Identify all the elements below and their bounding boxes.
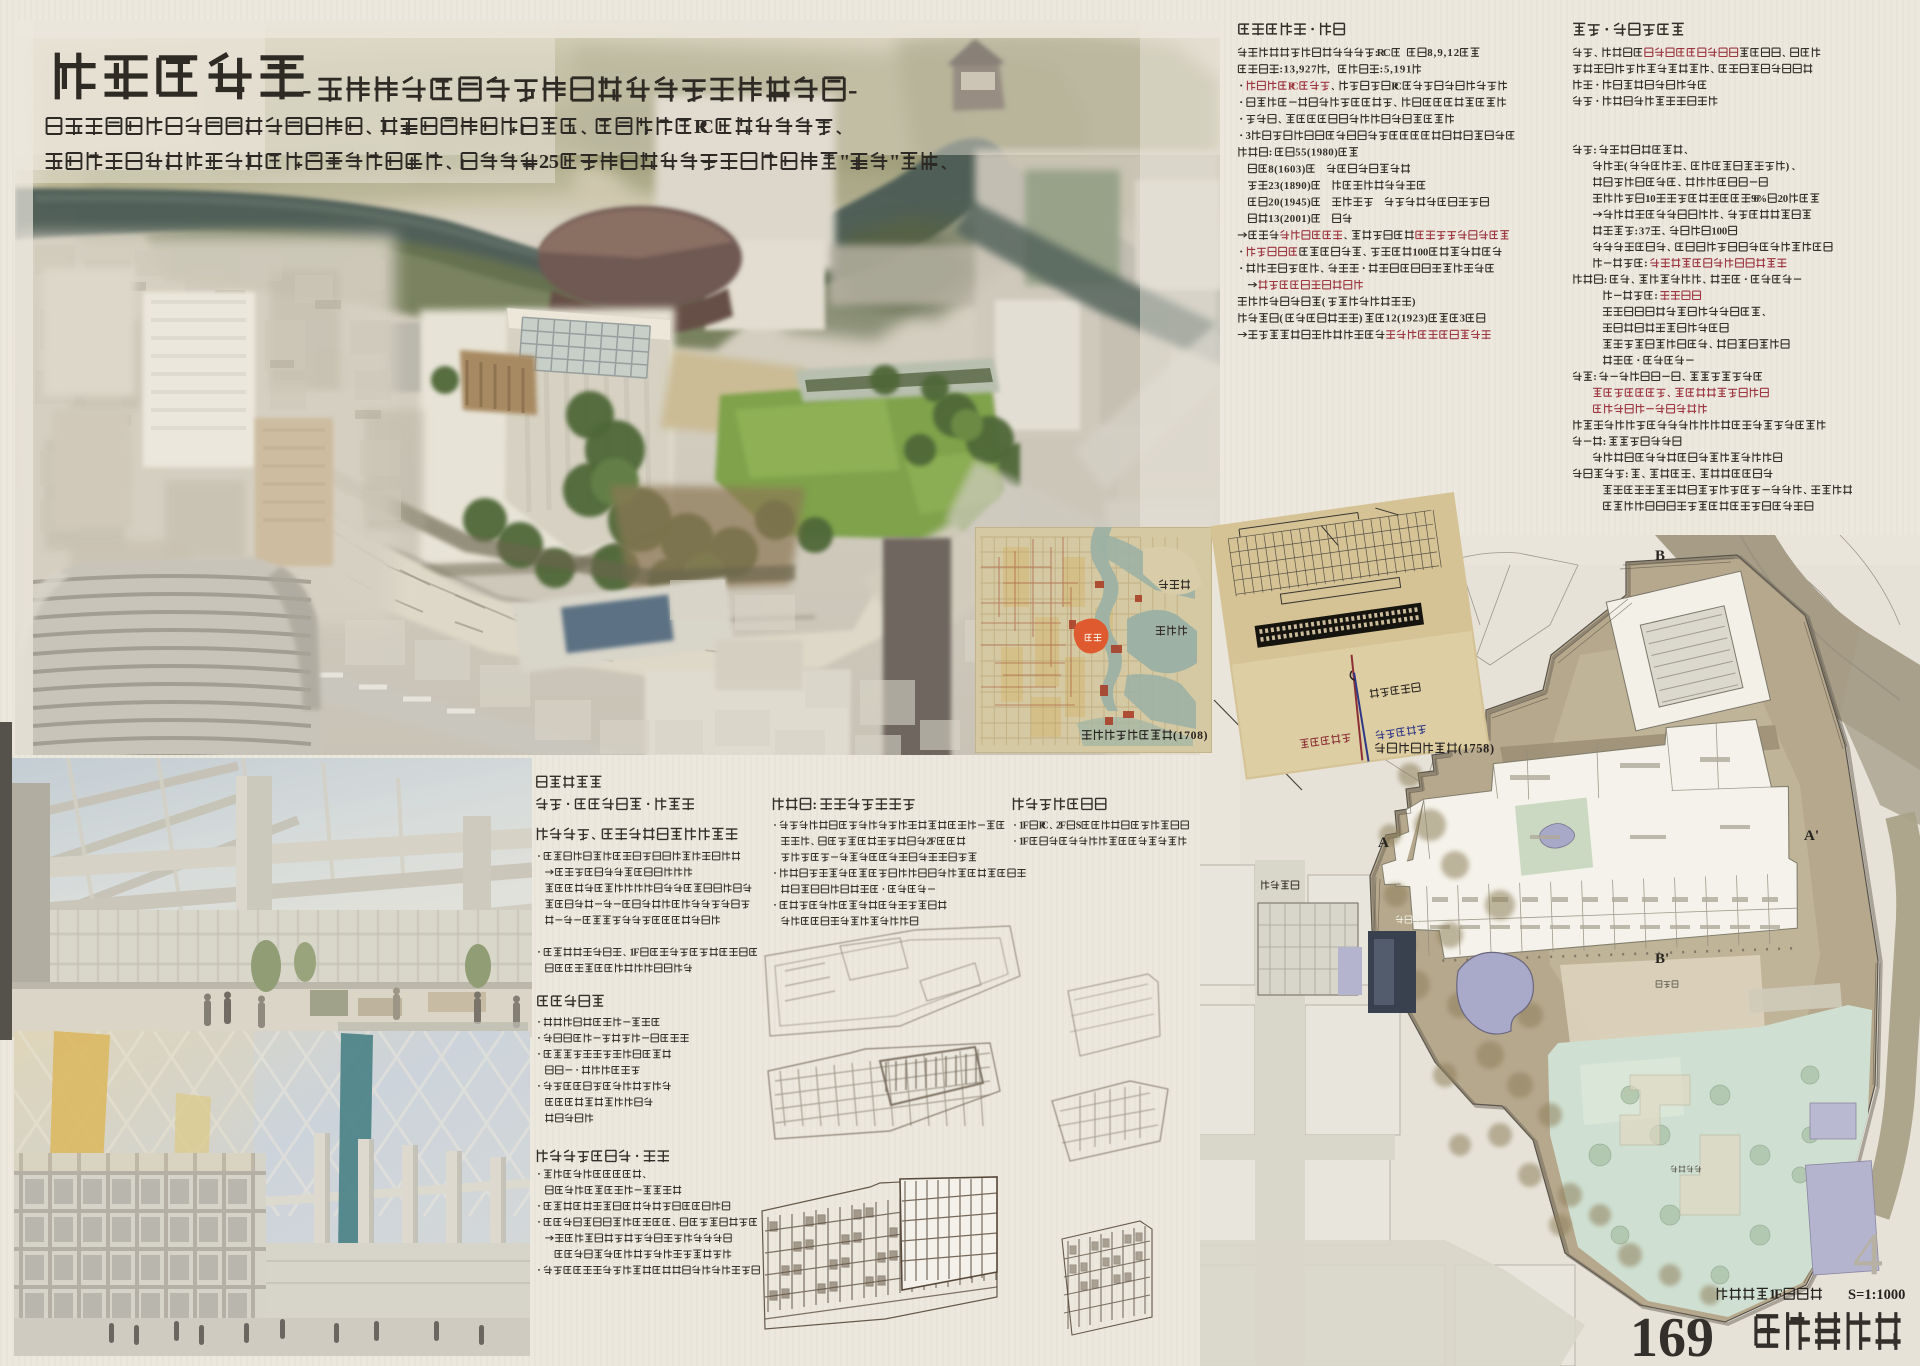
svg-text::: :	[1604, 274, 1608, 286]
svg-text::: :	[812, 797, 817, 813]
svg-text:100: 100	[1412, 246, 1428, 258]
svg-text:23(1890): 23(1890)	[1268, 180, 1311, 192]
svg-text:8,9,12: 8,9,12	[1427, 47, 1459, 59]
svg-text:(: (	[1322, 296, 1326, 308]
svg-text:B': B'	[1655, 951, 1669, 967]
svg-text:10: 10	[1645, 193, 1656, 205]
svg-text:100: 100	[1711, 225, 1727, 237]
svg-text:25: 25	[539, 151, 559, 173]
svg-text:A: A	[1378, 835, 1389, 851]
svg-text:B: B	[1655, 548, 1665, 564]
svg-text:1F: 1F	[630, 948, 640, 959]
svg-text:RC: RC	[1288, 80, 1299, 92]
svg-text:): )	[1359, 313, 1363, 325]
svg-text:1F: 1F	[1019, 837, 1029, 848]
svg-text:1F: 1F	[1769, 1287, 1783, 1302]
svg-text:S: S	[1076, 821, 1082, 832]
svg-text::: :	[1593, 371, 1597, 383]
svg-text:-: -	[848, 75, 858, 106]
svg-text::: :	[1625, 468, 1629, 480]
svg-text:,: ,	[1327, 64, 1330, 76]
svg-text:2F: 2F	[1056, 821, 1066, 832]
svg-text:20: 20	[1778, 193, 1789, 205]
svg-text:S=1:1000: S=1:1000	[1848, 1287, 1905, 1303]
svg-text::: :	[1593, 144, 1597, 156]
svg-text:3: 3	[1460, 313, 1466, 325]
svg-text:): )	[1786, 161, 1790, 173]
svg-text:96%: 96%	[1751, 193, 1767, 205]
svg-text:4: 4	[1853, 1221, 1883, 1287]
svg-text:RC: RC	[1391, 80, 1402, 92]
svg-text:": "	[889, 151, 900, 173]
svg-text::: :	[1603, 436, 1607, 448]
svg-text:3: 3	[1246, 130, 1252, 142]
svg-text:RC: RC	[694, 116, 714, 138]
svg-text::: :	[1654, 290, 1658, 302]
svg-text:-: -	[302, 75, 312, 106]
svg-text::RC: :RC	[1375, 47, 1391, 59]
svg-text:169: 169	[1630, 1307, 1714, 1366]
svg-text:RC: RC	[1039, 821, 1049, 832]
svg-text:): )	[1412, 296, 1416, 308]
svg-text:(: (	[1624, 161, 1628, 173]
svg-text:1F: 1F	[1019, 821, 1029, 832]
svg-text::5,191: :5,191	[1380, 64, 1412, 76]
svg-text:8(1603): 8(1603)	[1268, 163, 1305, 175]
svg-text::13,927: :13,927	[1279, 64, 1317, 76]
svg-text:A': A'	[1804, 828, 1819, 844]
svg-text:55(1980): 55(1980)	[1295, 147, 1338, 159]
svg-text::: :	[1269, 147, 1273, 159]
svg-text:13(2001): 13(2001)	[1268, 213, 1311, 225]
svg-text::37: :37	[1635, 225, 1651, 237]
svg-text:12(1923): 12(1923)	[1385, 313, 1428, 325]
svg-text:(: (	[1279, 313, 1283, 325]
svg-text:2F: 2F	[926, 837, 936, 848]
svg-text:20(1945): 20(1945)	[1268, 197, 1311, 209]
svg-text:(1758): (1758)	[1458, 741, 1494, 755]
svg-text:": "	[839, 151, 850, 173]
svg-text::: :	[1644, 258, 1648, 270]
